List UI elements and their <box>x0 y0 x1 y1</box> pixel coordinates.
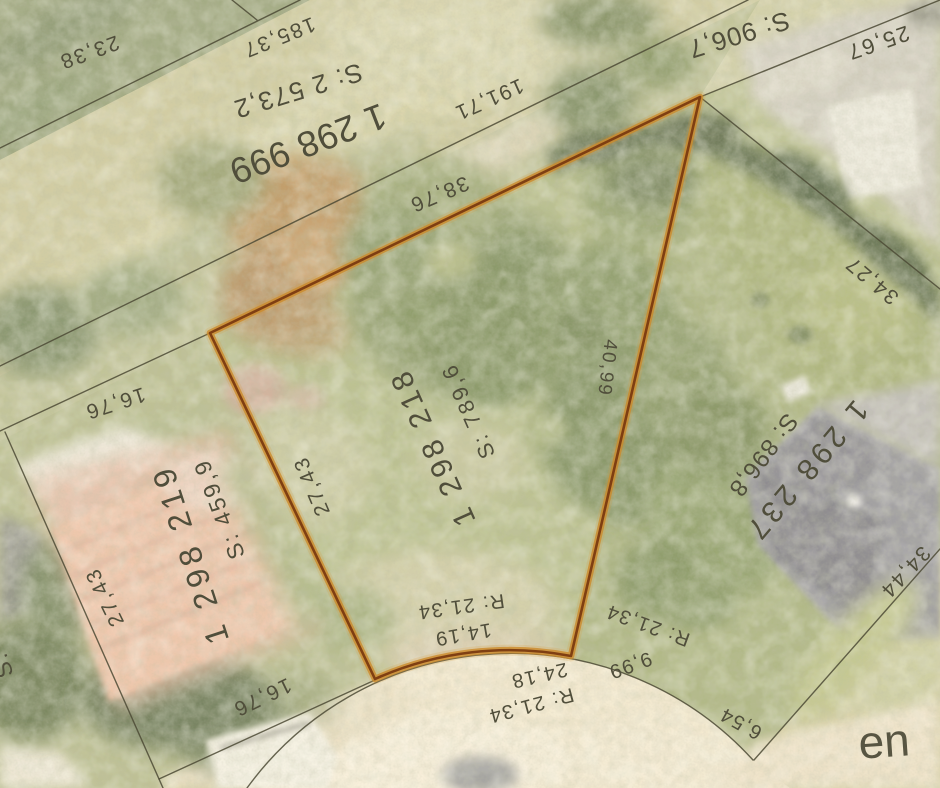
svg-text:en: en <box>857 713 912 768</box>
